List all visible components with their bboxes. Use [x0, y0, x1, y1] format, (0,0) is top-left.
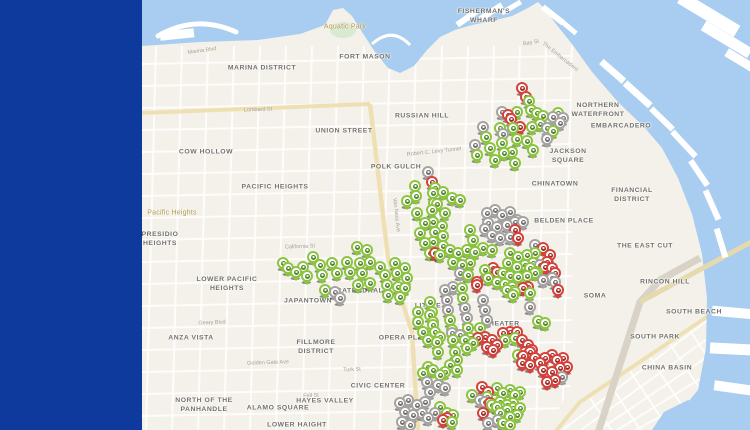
map-pin-green[interactable]: [454, 194, 466, 206]
map-pin-green[interactable]: [447, 334, 459, 346]
map-pin-gray[interactable]: [494, 232, 506, 244]
map-pin-green[interactable]: [434, 249, 446, 261]
map-pin-green[interactable]: [539, 317, 551, 329]
map-pin-green[interactable]: [446, 416, 458, 428]
map-pin-red[interactable]: [512, 232, 524, 244]
sidebar-panel: [0, 0, 142, 430]
map-pin-green[interactable]: [486, 244, 498, 256]
map-pin-green[interactable]: [461, 342, 473, 354]
map-pin-green[interactable]: [484, 142, 496, 154]
map-pin-gray[interactable]: [537, 274, 549, 286]
map-pin-green[interactable]: [401, 195, 413, 207]
map-pin-green[interactable]: [526, 121, 538, 133]
map-pin-green[interactable]: [439, 207, 451, 219]
app-window: FISHERMAN'S WHARFMARINA DISTRICTFORT MAS…: [0, 0, 750, 430]
map-pin-green[interactable]: [527, 144, 539, 156]
map-pin-green[interactable]: [432, 346, 444, 358]
map-pin-gray[interactable]: [541, 133, 553, 145]
map-pin-green[interactable]: [394, 291, 406, 303]
map-pin-green[interactable]: [316, 269, 328, 281]
map-pin-red[interactable]: [541, 376, 553, 388]
map-pin-red[interactable]: [487, 344, 499, 356]
map-pin-green[interactable]: [426, 204, 438, 216]
map-pin-green[interactable]: [301, 270, 313, 282]
map-pin-gray[interactable]: [422, 412, 434, 424]
map-pin-green[interactable]: [507, 289, 519, 301]
map-pin-green[interactable]: [451, 364, 463, 376]
map-pin-green[interactable]: [331, 267, 343, 279]
map-pin-gray[interactable]: [334, 292, 346, 304]
map-pin-red[interactable]: [552, 284, 564, 296]
map-pin-green[interactable]: [509, 157, 521, 169]
map-pin-green[interactable]: [361, 244, 373, 256]
map-pin-green[interactable]: [344, 266, 356, 278]
map-pin-red[interactable]: [471, 279, 483, 291]
map-pin-gray[interactable]: [439, 382, 451, 394]
pin-tail: [406, 427, 413, 430]
pin-tail: [484, 425, 491, 430]
map-pin-red[interactable]: [524, 359, 536, 371]
map-pin-green[interactable]: [364, 277, 376, 289]
fort-mason-park: [330, 22, 356, 38]
map-pin-green[interactable]: [382, 289, 394, 301]
map-pin-gray[interactable]: [404, 419, 416, 430]
map-pin-green[interactable]: [504, 419, 516, 430]
map-pin-green[interactable]: [352, 279, 364, 291]
map-pin-gray[interactable]: [482, 417, 494, 429]
map-pin-gray[interactable]: [524, 301, 536, 313]
map-pin-green[interactable]: [471, 149, 483, 161]
pin-tail: [506, 427, 513, 430]
map-pin-green[interactable]: [524, 287, 536, 299]
map-pin-green[interactable]: [489, 154, 501, 166]
